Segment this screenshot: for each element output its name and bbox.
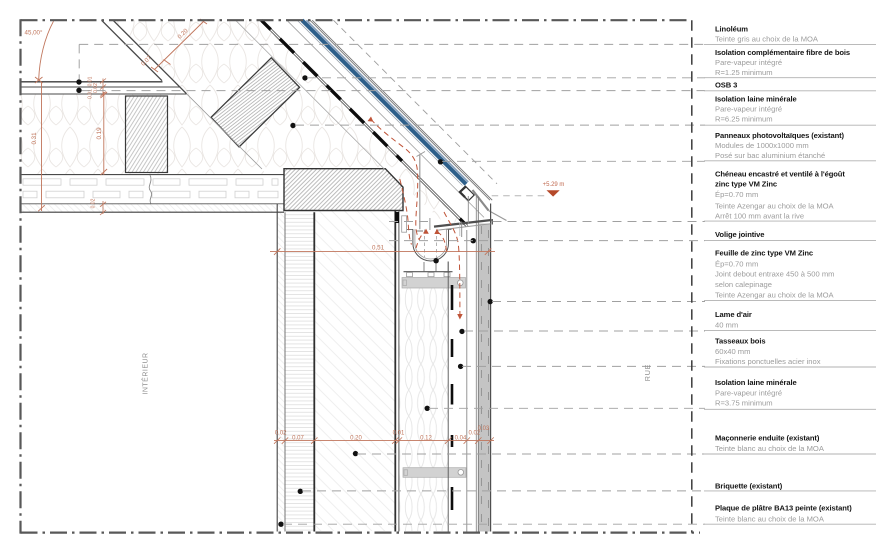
svg-text:0.20: 0.20 xyxy=(350,436,362,442)
svg-text:RUE: RUE xyxy=(643,364,652,382)
svg-text:0.04: 0.04 xyxy=(455,436,467,442)
svg-text:Teinte Azengar au choix de la: Teinte Azengar au choix de la MOA xyxy=(715,290,835,299)
svg-text:60x40 mm: 60x40 mm xyxy=(715,347,750,356)
svg-text:Teinte gris au choix de la MOA: Teinte gris au choix de la MOA xyxy=(715,34,819,43)
svg-text:0,51: 0,51 xyxy=(372,244,385,251)
svg-text:Posé sur bac aluminium étanché: Posé sur bac aluminium étanché xyxy=(715,151,825,160)
svg-text:Arrêt 100 mm avant la rive: Arrêt 100 mm avant la rive xyxy=(715,212,804,221)
svg-text:0.12: 0.12 xyxy=(420,436,432,442)
svg-text:Pare-vapeur intégré: Pare-vapeur intégré xyxy=(715,389,782,398)
svg-text:Ép=0.70 mm: Ép=0.70 mm xyxy=(715,259,758,268)
svg-text:+5.29 m: +5.29 m xyxy=(543,182,565,188)
svg-text:0.07: 0.07 xyxy=(292,436,304,442)
svg-text:0.19: 0.19 xyxy=(96,127,103,140)
svg-text:Teinte Azengar au choix de la: Teinte Azengar au choix de la MOA xyxy=(715,202,835,211)
svg-text:OSB 3: OSB 3 xyxy=(715,81,737,90)
svg-text:0.03: 0.03 xyxy=(478,426,490,432)
svg-text:Teinte blanc au choix de la MO: Teinte blanc au choix de la MOA xyxy=(715,444,825,453)
svg-text:R=3.75 minimum: R=3.75 minimum xyxy=(715,398,773,407)
svg-text:Linoléum: Linoléum xyxy=(715,24,748,33)
svg-text:Briquette (existant): Briquette (existant) xyxy=(715,481,783,490)
svg-text:Volige jointive: Volige jointive xyxy=(715,230,764,239)
svg-text:Panneaux photovoltaïques (exis: Panneaux photovoltaïques (existant) xyxy=(715,131,845,140)
svg-text:0.02: 0.02 xyxy=(275,430,287,436)
svg-text:INTÉRIEUR: INTÉRIEUR xyxy=(141,352,150,394)
svg-text:0.01: 0.01 xyxy=(393,430,405,436)
svg-text:Feuille de zinc type VM Zinc: Feuille de zinc type VM Zinc xyxy=(715,249,813,258)
svg-text:Chéneau encastré et ventilé à: Chéneau encastré et ventilé à l'égoût xyxy=(715,170,845,179)
svg-text:40 mm: 40 mm xyxy=(715,320,738,329)
svg-text:Plaque de plâtre BA13 peinte (: Plaque de plâtre BA13 peinte (existant) xyxy=(715,504,852,513)
svg-text:Tasseaux bois: Tasseaux bois xyxy=(715,336,765,345)
svg-text:Isolation laine minérale: Isolation laine minérale xyxy=(715,95,797,104)
svg-text:Maçonnerie enduite (existant): Maçonnerie enduite (existant) xyxy=(715,433,820,442)
svg-text:0.02: 0.02 xyxy=(93,83,99,93)
svg-text:Teinte blanc au choix de la MO: Teinte blanc au choix de la MOA xyxy=(715,515,825,524)
svg-text:45,00°: 45,00° xyxy=(25,30,43,37)
svg-text:Modules de 1000x1000 mm: Modules de 1000x1000 mm xyxy=(715,141,809,150)
svg-text:Ép=0.70 mm: Ép=0.70 mm xyxy=(715,190,758,199)
svg-text:Joint debout entraxe 450 à 500: Joint debout entraxe 450 à 500 mm xyxy=(715,270,834,279)
svg-text:R=1.25 minimum: R=1.25 minimum xyxy=(715,68,773,77)
svg-text:Pare-vapeur intégré: Pare-vapeur intégré xyxy=(715,58,782,67)
svg-text:Isolation complémentaire fibre: Isolation complémentaire fibre de bois xyxy=(715,48,850,57)
svg-text:Fixations ponctuelles acier in: Fixations ponctuelles acier inox xyxy=(715,357,821,366)
svg-text:0.02: 0.02 xyxy=(91,198,97,208)
svg-text:R=6.25 minimum: R=6.25 minimum xyxy=(715,115,773,124)
svg-text:0.31: 0.31 xyxy=(31,132,38,145)
svg-text:Isolation laine minérale: Isolation laine minérale xyxy=(715,378,797,387)
svg-text:selon calepinage: selon calepinage xyxy=(715,280,772,289)
svg-text:Pare-vapeur intégré: Pare-vapeur intégré xyxy=(715,105,782,114)
svg-text:zinc type VM Zinc: zinc type VM Zinc xyxy=(715,180,777,189)
svg-text:Lame d'air: Lame d'air xyxy=(715,310,752,319)
